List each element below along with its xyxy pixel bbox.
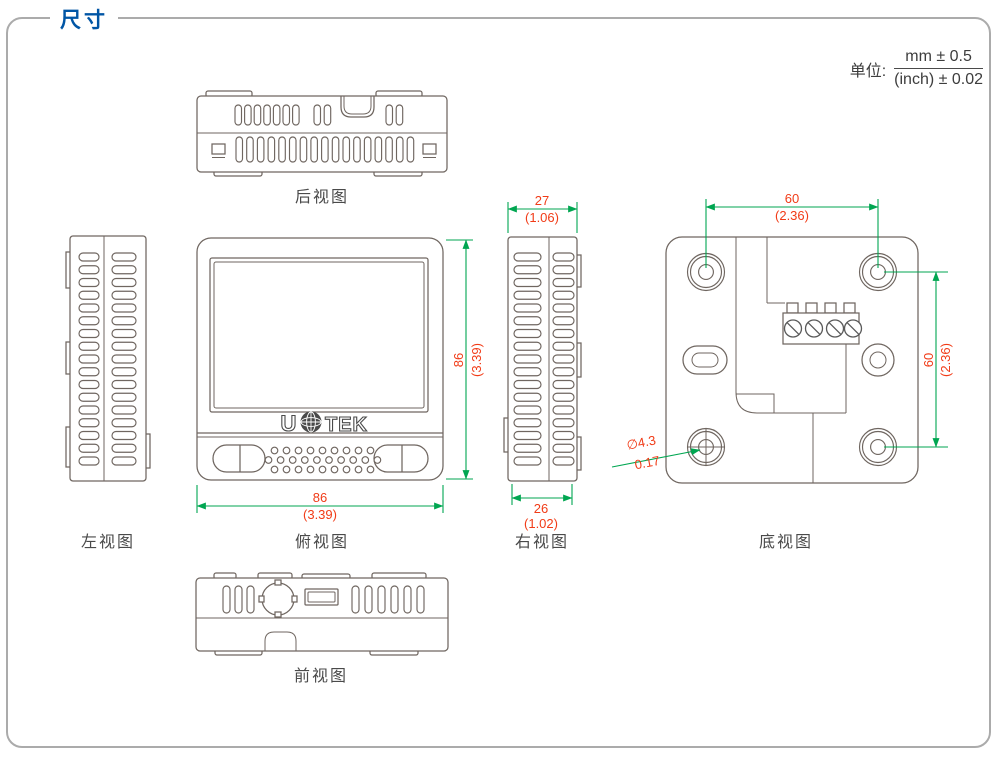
unit-note: 单位: mm ± 0.5 (inch) ± 0.02 — [850, 47, 983, 90]
svg-text:(1.06): (1.06) — [525, 210, 559, 225]
left-view: 左视图 — [66, 236, 150, 551]
rear-port-right — [423, 144, 436, 154]
svg-text:(1.02): (1.02) — [524, 516, 558, 531]
svg-text:26: 26 — [534, 501, 548, 516]
front-view-label: 前视图 — [294, 667, 348, 685]
dim-depth-bottom: 26 (1.02) — [512, 484, 572, 531]
vent-slots — [553, 253, 574, 465]
svg-text:∅4.3: ∅4.3 — [625, 432, 657, 452]
right-view-label: 右视图 — [515, 533, 569, 551]
top-body — [197, 238, 443, 480]
svg-text:(2.36): (2.36) — [775, 208, 809, 223]
vent-slots — [223, 586, 254, 613]
page-title: 尺寸 — [50, 4, 118, 34]
brand-logo: U TEK — [281, 411, 368, 436]
rear-view: 后视图 — [197, 91, 447, 206]
svg-text:(3.39): (3.39) — [303, 507, 337, 522]
rear-port-left — [212, 144, 225, 154]
unit-label: 单位: — [850, 57, 886, 81]
svg-text:(3.39): (3.39) — [469, 343, 484, 377]
svg-text:0.17: 0.17 — [633, 453, 661, 473]
svg-text:86: 86 — [313, 490, 327, 505]
vent-slots — [235, 105, 299, 125]
left-view-label: 左视图 — [81, 533, 135, 551]
front-view: 前视图 — [196, 573, 448, 685]
svg-text:(2.36): (2.36) — [938, 343, 953, 377]
dim-width: 86 (3.39) — [197, 485, 443, 522]
svg-text:60: 60 — [921, 353, 936, 367]
technical-drawing: 后视图 左视图 U — [0, 0, 999, 763]
brand-prefix: U — [281, 411, 298, 436]
rear-view-label: 后视图 — [295, 188, 349, 206]
svg-text:86: 86 — [451, 353, 466, 367]
speaker-holes — [271, 447, 374, 454]
vent-slots — [112, 253, 136, 465]
svg-text:60: 60 — [785, 191, 799, 206]
dim-depth-top: 27 (1.06) — [508, 193, 577, 233]
vent-slots — [79, 253, 99, 465]
unit-inch-tolerance: (inch) ± 0.02 — [894, 69, 983, 90]
dim-height: 86 (3.39) — [446, 240, 484, 479]
speaker-holes — [271, 466, 374, 473]
dimension-drawing-page: 尺寸 单位: mm ± 0.5 (inch) ± 0.02 — [0, 0, 999, 763]
vent-slots — [514, 253, 541, 465]
right-view: 右视图 27 (1.06) 26 (1.02) — [504, 193, 581, 551]
globe-icon — [301, 412, 322, 433]
vent-slots — [236, 137, 414, 162]
bottom-view-label: 底视图 — [759, 533, 813, 551]
unit-mm-tolerance: mm ± 0.5 — [894, 47, 983, 69]
top-view-label: 俯视图 — [295, 533, 349, 551]
top-view: U TEK 俯视图 — [197, 238, 484, 551]
svg-text:27: 27 — [535, 193, 549, 208]
bottom-view: 底视图 60 (2.36) 60 (2.36) ∅4.3 0.17 — [612, 191, 953, 551]
unit-fraction: mm ± 0.5 (inch) ± 0.02 — [894, 47, 983, 90]
